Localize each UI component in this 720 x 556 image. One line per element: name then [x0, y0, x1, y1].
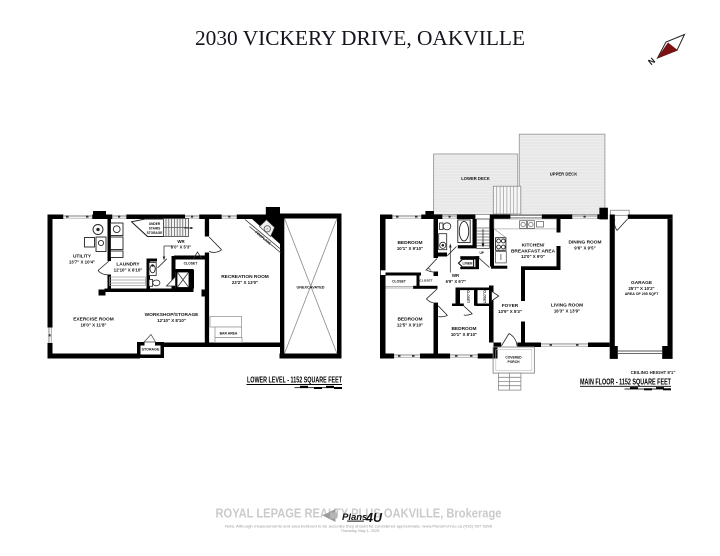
svg-text:WR: WR — [452, 273, 460, 278]
svg-text:LINEN: LINEN — [463, 261, 474, 265]
svg-text:UNEXCAVATED: UNEXCAVATED — [296, 286, 324, 290]
svg-text:23'2" X 13'0": 23'2" X 13'0" — [232, 280, 258, 285]
svg-text:STAIRS: STAIRS — [149, 227, 160, 231]
svg-text:CEILING HEIGHT 8'1": CEILING HEIGHT 8'1" — [631, 370, 676, 375]
svg-text:4U: 4U — [365, 511, 383, 525]
svg-text:12'5" X 9'10": 12'5" X 9'10" — [397, 323, 423, 328]
svg-text:KITCHEN/: KITCHEN/ — [522, 243, 545, 249]
svg-text:BAR AREA: BAR AREA — [220, 331, 238, 335]
svg-text:LOWER LEVEL - 1152 SQUARE FEET: LOWER LEVEL - 1152 SQUARE FEET — [247, 376, 342, 385]
svg-text:12'10" X 8'10": 12'10" X 8'10" — [157, 318, 186, 323]
svg-text:LOWER DECK: LOWER DECK — [461, 176, 490, 181]
svg-text:13'7" X 10'4": 13'7" X 10'4" — [69, 260, 95, 265]
svg-text:STORAGE: STORAGE — [142, 348, 160, 352]
svg-text:Thursday, May 1, 2025: Thursday, May 1, 2025 — [341, 529, 380, 533]
svg-text:CLOSET: CLOSET — [184, 262, 199, 266]
svg-text:CLOSET: CLOSET — [392, 279, 407, 283]
svg-text:9'6" X 9'5": 9'6" X 9'5" — [574, 246, 595, 251]
svg-text:Note: Although measurements an: Note: Although measurements and area bel… — [225, 525, 492, 529]
svg-text:UNDER: UNDER — [149, 222, 161, 226]
svg-text:16'3" X 13'9": 16'3" X 13'9" — [554, 309, 580, 314]
svg-text:16'0" X 11'8": 16'0" X 11'8" — [80, 323, 106, 328]
svg-text:8'0" X 5'3": 8'0" X 5'3" — [171, 245, 191, 250]
svg-text:13'9" X 5'3": 13'9" X 5'3" — [498, 309, 522, 314]
svg-text:12'0" X 9'0": 12'0" X 9'0" — [521, 254, 545, 259]
svg-text:CLOSET: CLOSET — [466, 290, 470, 303]
svg-text:PORCH: PORCH — [508, 360, 521, 364]
svg-text:MAIN FLOOR - 1152 SQUARE FEET: MAIN FLOOR - 1152 SQUARE FEET — [580, 378, 671, 387]
svg-text:CLOSET: CLOSET — [482, 290, 486, 303]
svg-text:10'1" X 9'10": 10'1" X 9'10" — [397, 246, 423, 251]
svg-text:10'1" X 8'10": 10'1" X 8'10" — [451, 332, 477, 337]
svg-text:2030 VICKERY DRIVE, OAKVILLE: 2030 VICKERY DRIVE, OAKVILLE — [195, 26, 525, 50]
svg-text:COVERED: COVERED — [505, 355, 522, 359]
svg-text:WR: WR — [177, 239, 185, 244]
svg-text:STORAGE: STORAGE — [147, 231, 163, 235]
svg-text:12'10" X 6'10": 12'10" X 6'10" — [114, 268, 143, 273]
svg-text:25'7" X 10'2": 25'7" X 10'2" — [628, 286, 654, 291]
svg-text:UPPER DECK: UPPER DECK — [550, 172, 577, 177]
svg-text:6'9" X 6'7": 6'9" X 6'7" — [446, 279, 466, 284]
svg-text:CLOSET: CLOSET — [420, 279, 433, 283]
svg-text:AREA OF 295 SQFT: AREA OF 295 SQFT — [625, 292, 659, 296]
